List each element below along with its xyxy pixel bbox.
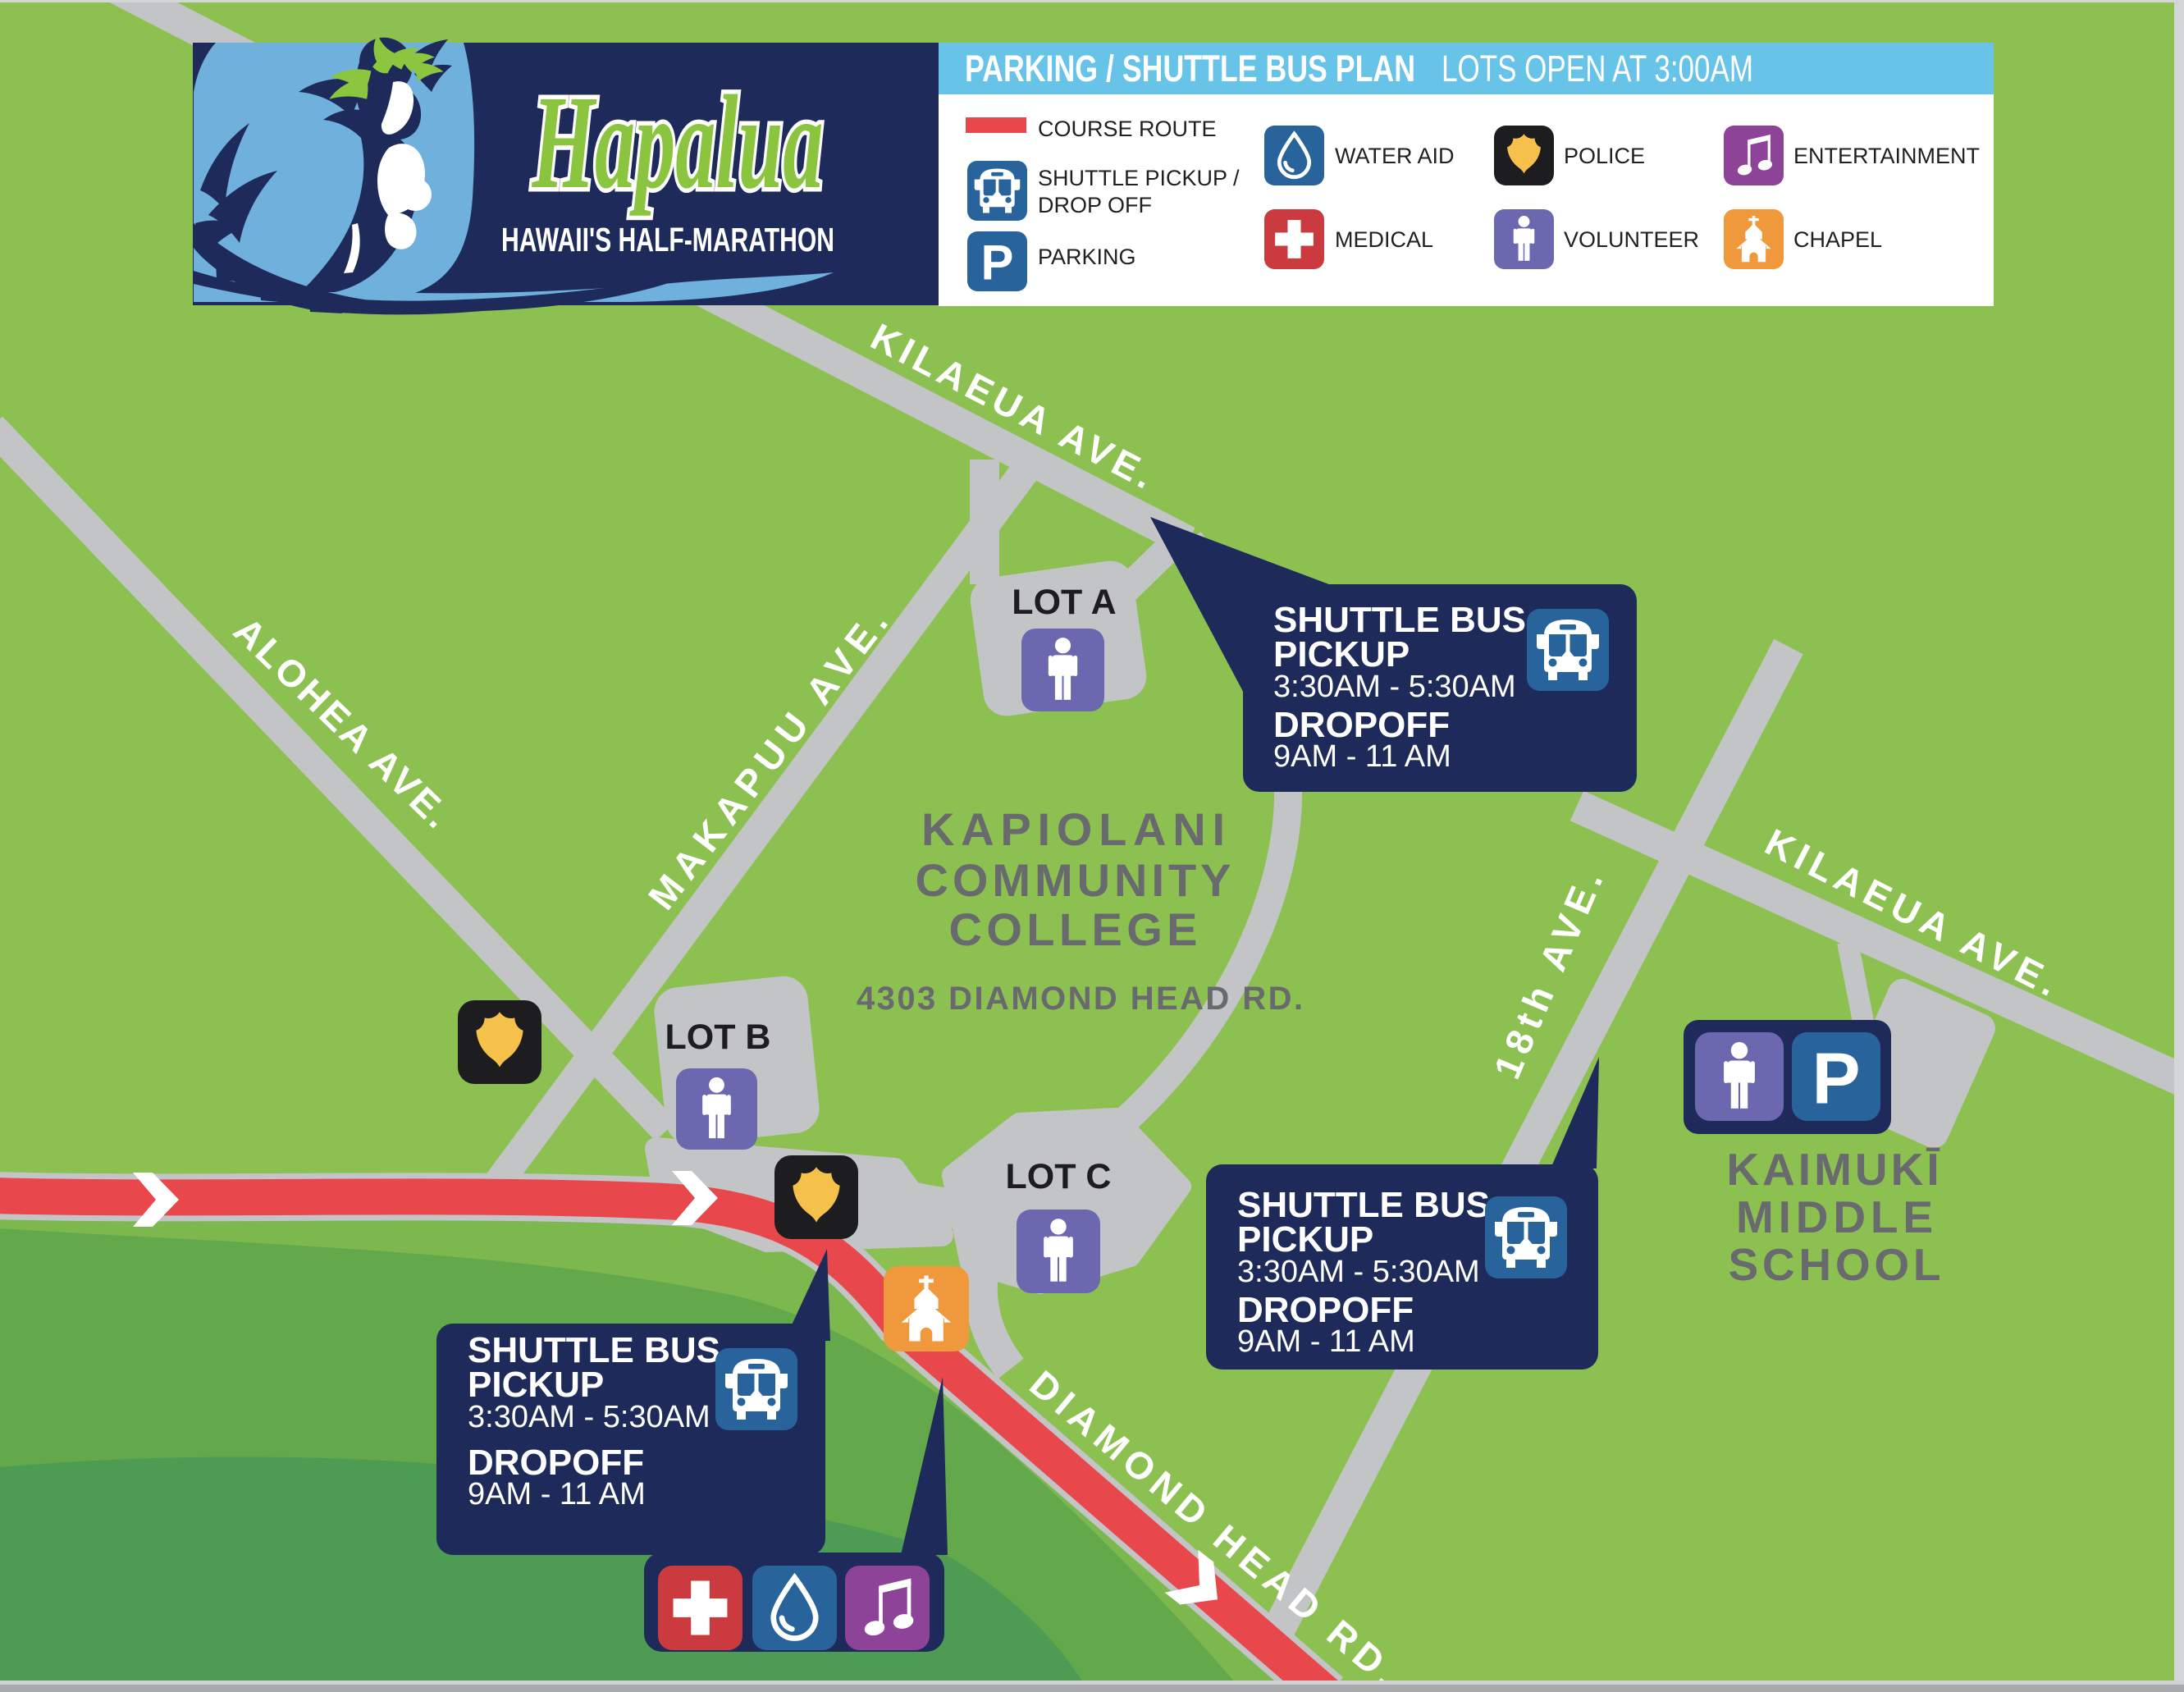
- svg-text:KAPIOLANI: KAPIOLANI: [921, 803, 1225, 855]
- svg-text:9AM - 11 AM: 9AM - 11 AM: [1237, 1324, 1415, 1359]
- svg-text:ENTERTAINMENT: ENTERTAINMENT: [1793, 144, 1980, 168]
- svg-text:PICKUP: PICKUP: [1237, 1219, 1373, 1260]
- svg-text:9AM - 11 AM: 9AM - 11 AM: [468, 1477, 646, 1511]
- svg-text:9AM - 11 AM: 9AM - 11 AM: [1273, 739, 1451, 774]
- svg-text:3:30AM - 5:30AM: 3:30AM - 5:30AM: [1237, 1255, 1480, 1289]
- svg-text:WATER AID: WATER AID: [1335, 144, 1455, 168]
- svg-text:COLLEGE: COLLEGE: [949, 903, 1198, 955]
- svg-text:4303 DIAMOND HEAD RD.: 4303 DIAMOND HEAD RD.: [857, 981, 1303, 1017]
- svg-text:LOT A: LOT A: [1012, 583, 1116, 622]
- svg-text:KAIMUKĪ: KAIMUKĪ: [1726, 1144, 1942, 1195]
- svg-text:LOT B: LOT B: [665, 1017, 771, 1057]
- svg-text:Hapalua: Hapalua: [532, 69, 824, 217]
- svg-text:POLICE: POLICE: [1564, 144, 1645, 168]
- svg-text:SHUTTLE PICKUP /: SHUTTLE PICKUP /: [1038, 166, 1240, 190]
- svg-text:VOLUNTEER: VOLUNTEER: [1564, 227, 1699, 252]
- svg-text:PARKING: PARKING: [1038, 245, 1136, 269]
- svg-text:PICKUP: PICKUP: [468, 1365, 604, 1405]
- svg-text:LOT C: LOT C: [1006, 1157, 1112, 1196]
- svg-text:PARKING / SHUTTLE BUS PLAN: PARKING / SHUTTLE BUS PLAN: [965, 48, 1415, 89]
- svg-text:3:30AM - 5:30AM: 3:30AM - 5:30AM: [468, 1400, 710, 1434]
- svg-text:MEDICAL: MEDICAL: [1335, 227, 1433, 252]
- svg-text:DROP OFF: DROP OFF: [1038, 193, 1152, 217]
- svg-text:LOTS OPEN AT 3:00AM: LOTS OPEN AT 3:00AM: [1442, 48, 1753, 89]
- svg-text:PICKUP: PICKUP: [1273, 634, 1410, 675]
- svg-text:CHAPEL: CHAPEL: [1793, 227, 1882, 252]
- svg-text:MIDDLE: MIDDLE: [1736, 1191, 1933, 1242]
- svg-text:HAWAII'S HALF-MARATHON: HAWAII'S HALF-MARATHON: [501, 221, 834, 258]
- svg-text:3:30AM - 5:30AM: 3:30AM - 5:30AM: [1273, 670, 1516, 704]
- svg-text:COURSE ROUTE: COURSE ROUTE: [1038, 117, 1217, 141]
